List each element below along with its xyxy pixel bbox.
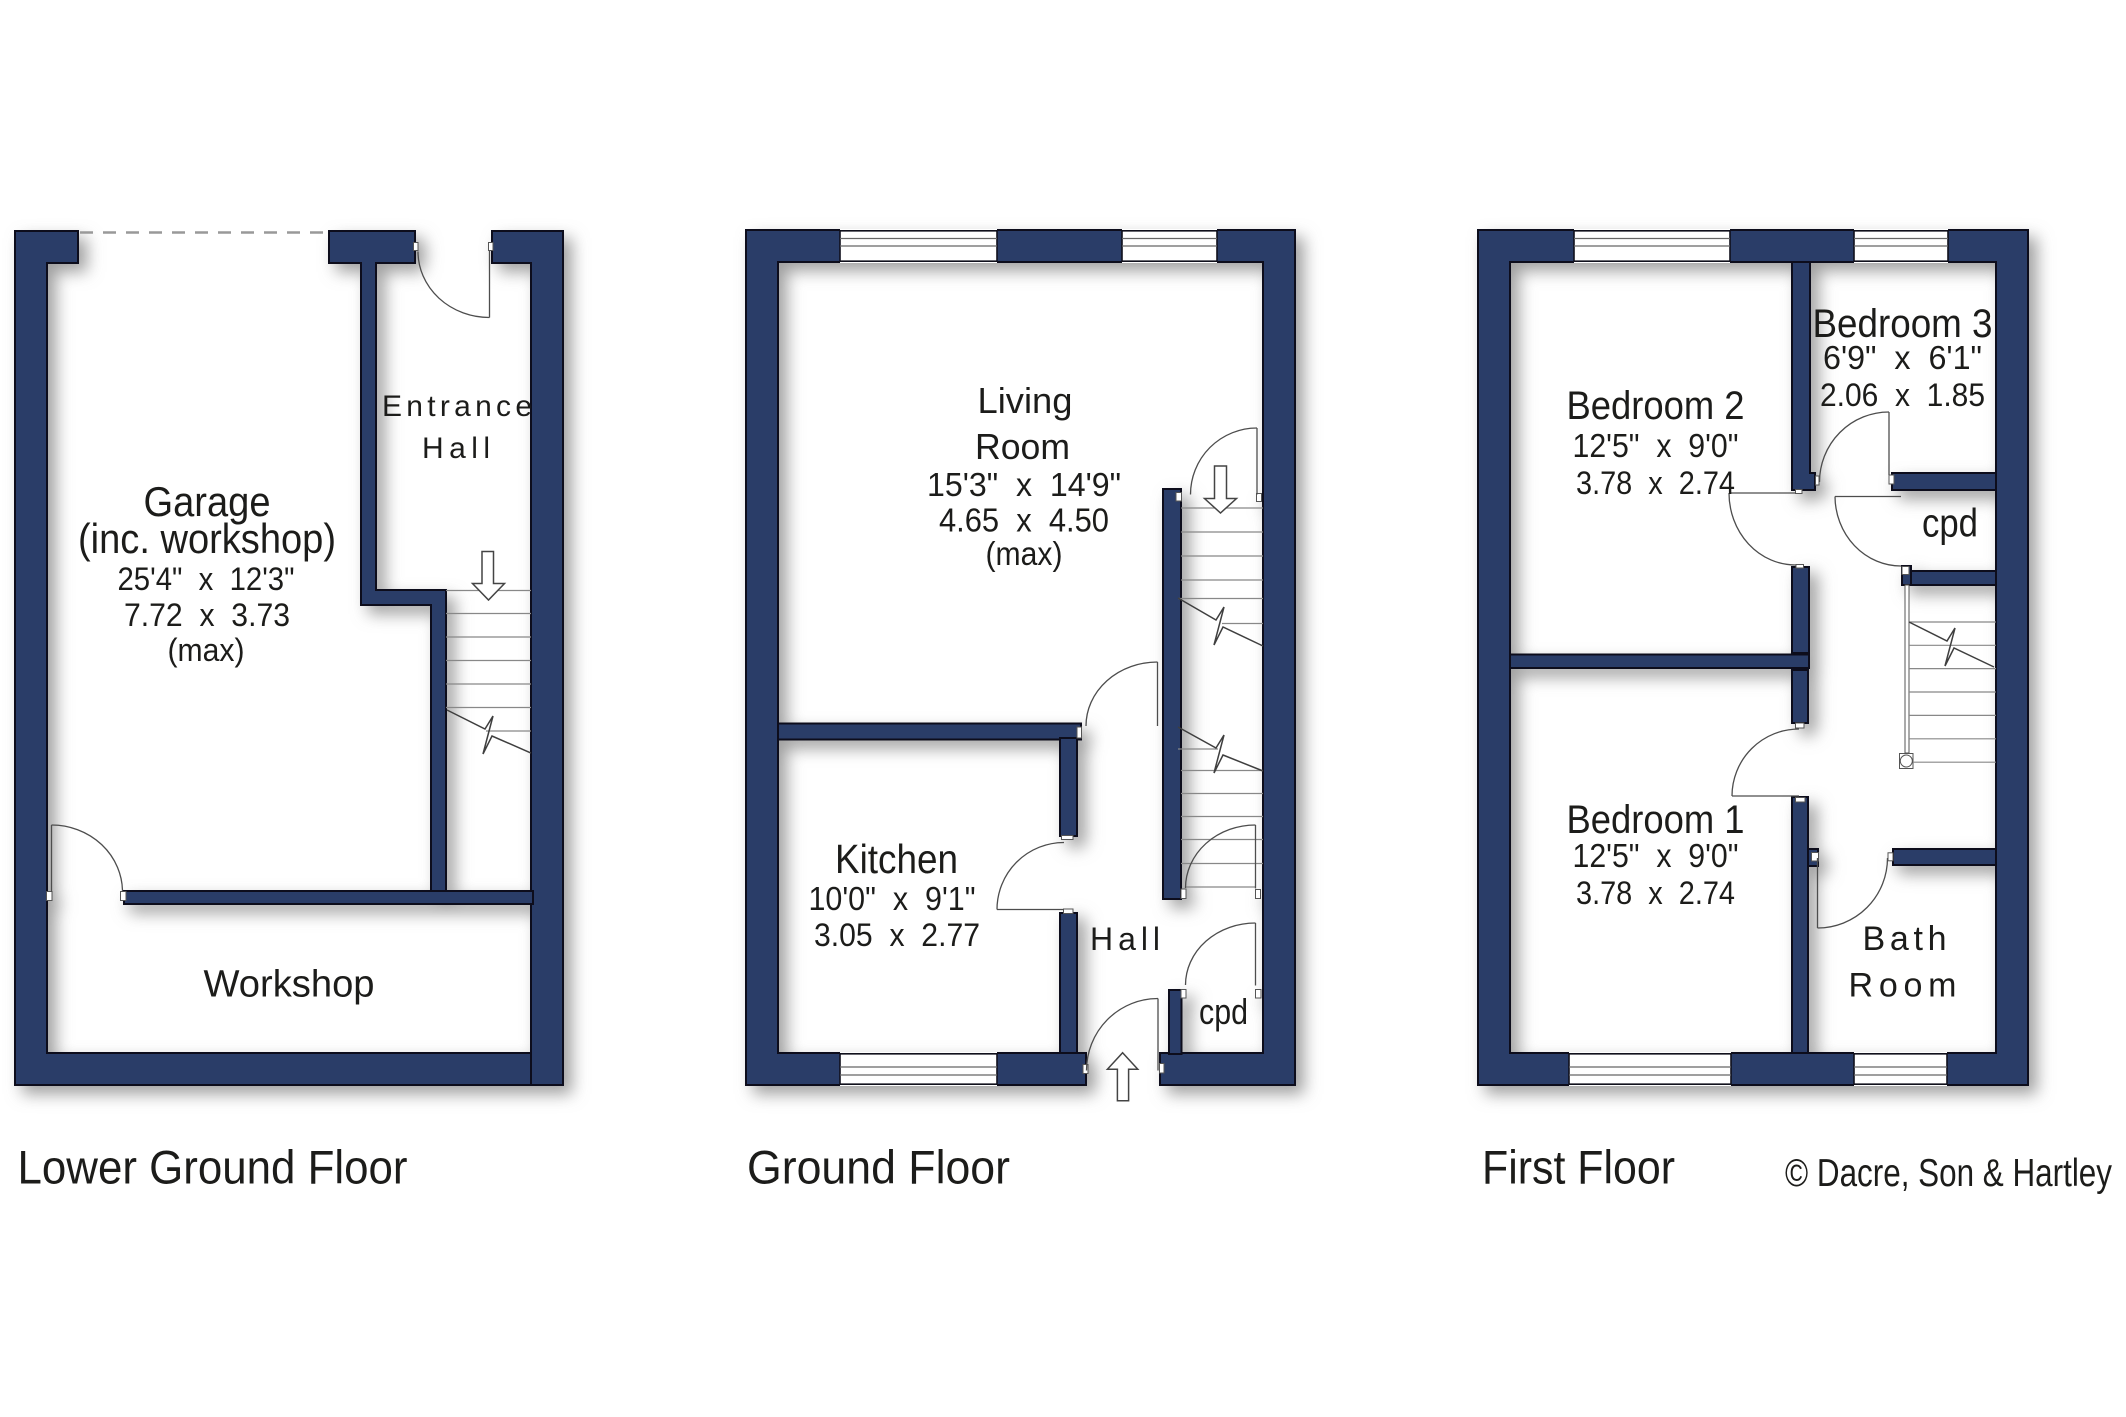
svg-text:(max): (max) [986,535,1063,572]
svg-text:4.65 x 4.50: 4.65 x 4.50 [939,502,1109,539]
svg-text:Room: Room [1849,967,1957,1005]
svg-text:Lower Ground Floor: Lower Ground Floor [18,1141,408,1194]
svg-text:2.06 x 1.85: 2.06 x 1.85 [1820,377,1985,413]
svg-text:3.78 x 2.74: 3.78 x 2.74 [1576,875,1735,911]
svg-text:12'5" x 9'0": 12'5" x 9'0" [1573,427,1739,464]
svg-text:Room: Room [975,426,1070,467]
svg-text:12'5" x 9'0": 12'5" x 9'0" [1573,837,1739,874]
svg-text:First Floor: First Floor [1482,1141,1675,1194]
svg-text:cpd: cpd [1199,991,1248,1032]
svg-text:Living: Living [978,380,1073,421]
svg-text:cpd: cpd [1922,502,1978,546]
svg-text:Bedroom 2: Bedroom 2 [1567,384,1745,428]
svg-text:Workshop: Workshop [204,964,375,1006]
svg-text:(inc. workshop): (inc. workshop) [78,515,336,562]
svg-text:(max): (max) [168,632,245,668]
svg-text:3.78 x 2.74: 3.78 x 2.74 [1576,465,1735,501]
svg-text:25'4" x 12'3": 25'4" x 12'3" [118,561,295,597]
svg-text:7.72 x 3.73: 7.72 x 3.73 [124,597,290,633]
svg-text:15'3" x 14'9": 15'3" x 14'9" [927,466,1121,503]
svg-text:3.05 x 2.77: 3.05 x 2.77 [814,917,980,953]
svg-text:Ground Floor: Ground Floor [747,1141,1010,1194]
svg-text:© Dacre, Son & Hartley: © Dacre, Son & Hartley [1785,1152,2112,1195]
svg-text:10'0" x 9'1": 10'0" x 9'1" [809,880,976,917]
svg-text:Kitchen: Kitchen [835,836,958,882]
svg-text:Bedroom 1: Bedroom 1 [1567,798,1745,842]
svg-text:Bath: Bath [1863,920,1947,958]
svg-text:6'9" x 6'1": 6'9" x 6'1" [1823,339,1982,376]
